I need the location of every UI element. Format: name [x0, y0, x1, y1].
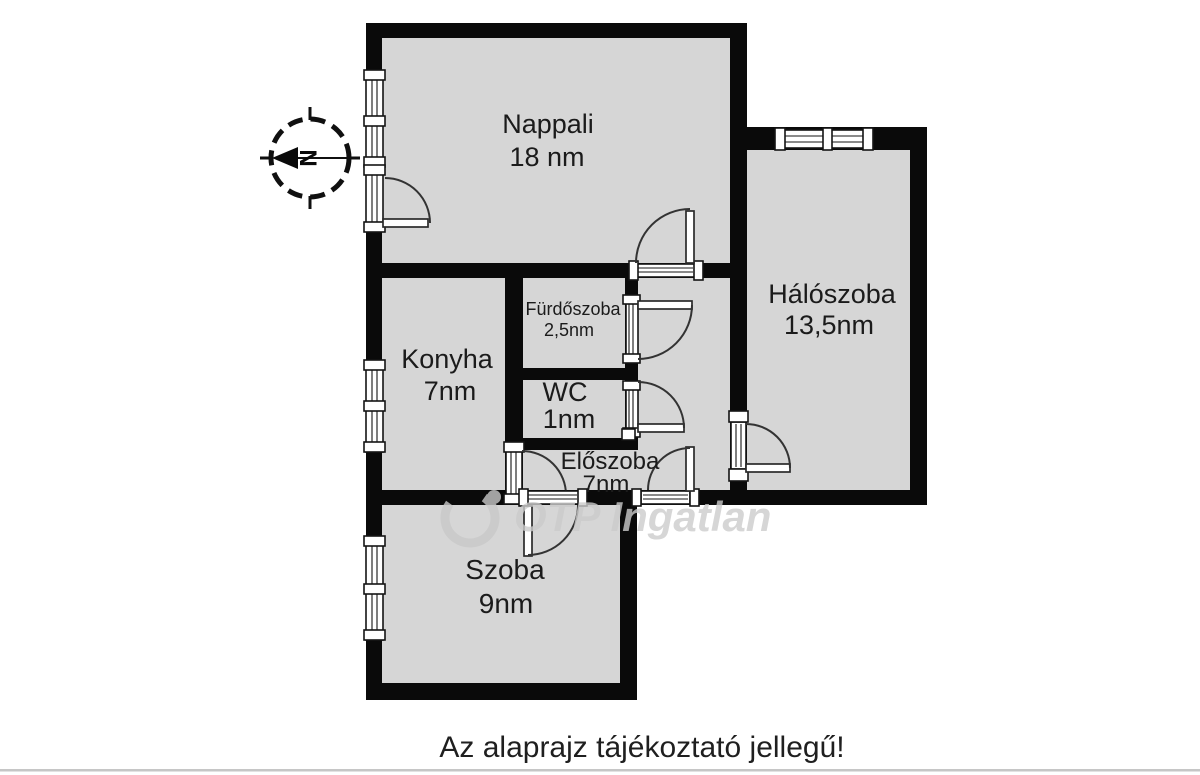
room-area: 1nm: [543, 404, 596, 434]
door-leaf: [383, 219, 428, 227]
door-leaf: [638, 424, 684, 432]
room-name: Konyha: [401, 344, 494, 374]
room-name: Hálószoba: [768, 279, 897, 309]
compass-north-label: N: [294, 149, 321, 166]
compass-icon: N: [260, 107, 360, 209]
room-name: WC: [543, 377, 588, 407]
room-area: 7nm: [424, 376, 477, 406]
caption-text: Az alaprajz tájékoztató jellegű!: [439, 731, 844, 764]
floorplan-canvas: Nappali 18 nm Hálószoba 13,5nm Fürdőszob…: [0, 0, 1200, 775]
watermark-logo-dot-icon: [487, 490, 501, 504]
room-name: Fürdőszoba: [525, 299, 621, 319]
wall-nappali-top: [366, 23, 743, 38]
room-label-wc: WC 1nm: [543, 377, 596, 434]
door-leaf: [746, 464, 790, 472]
window-haloszoba: [775, 128, 873, 150]
room-area: 13,5nm: [784, 310, 874, 340]
door-leaf: [686, 447, 694, 491]
room-area: 18 nm: [509, 142, 584, 172]
wall-szoba-bottom: [366, 683, 637, 700]
door-leaf: [638, 301, 692, 309]
window-nappali: [364, 70, 385, 167]
window-konyha: [364, 360, 385, 452]
bottom-divider: [0, 769, 1200, 772]
room-area: 2,5nm: [544, 320, 594, 340]
room-name: Nappali: [502, 109, 594, 139]
room-area: 9nm: [479, 588, 533, 619]
window-szoba: [364, 536, 385, 640]
door-leaf: [686, 211, 694, 263]
room-name: Szoba: [465, 554, 545, 585]
wall-haloszoba-right: [910, 127, 927, 505]
watermark-brand-text: OTP Ingatlan: [514, 493, 771, 540]
